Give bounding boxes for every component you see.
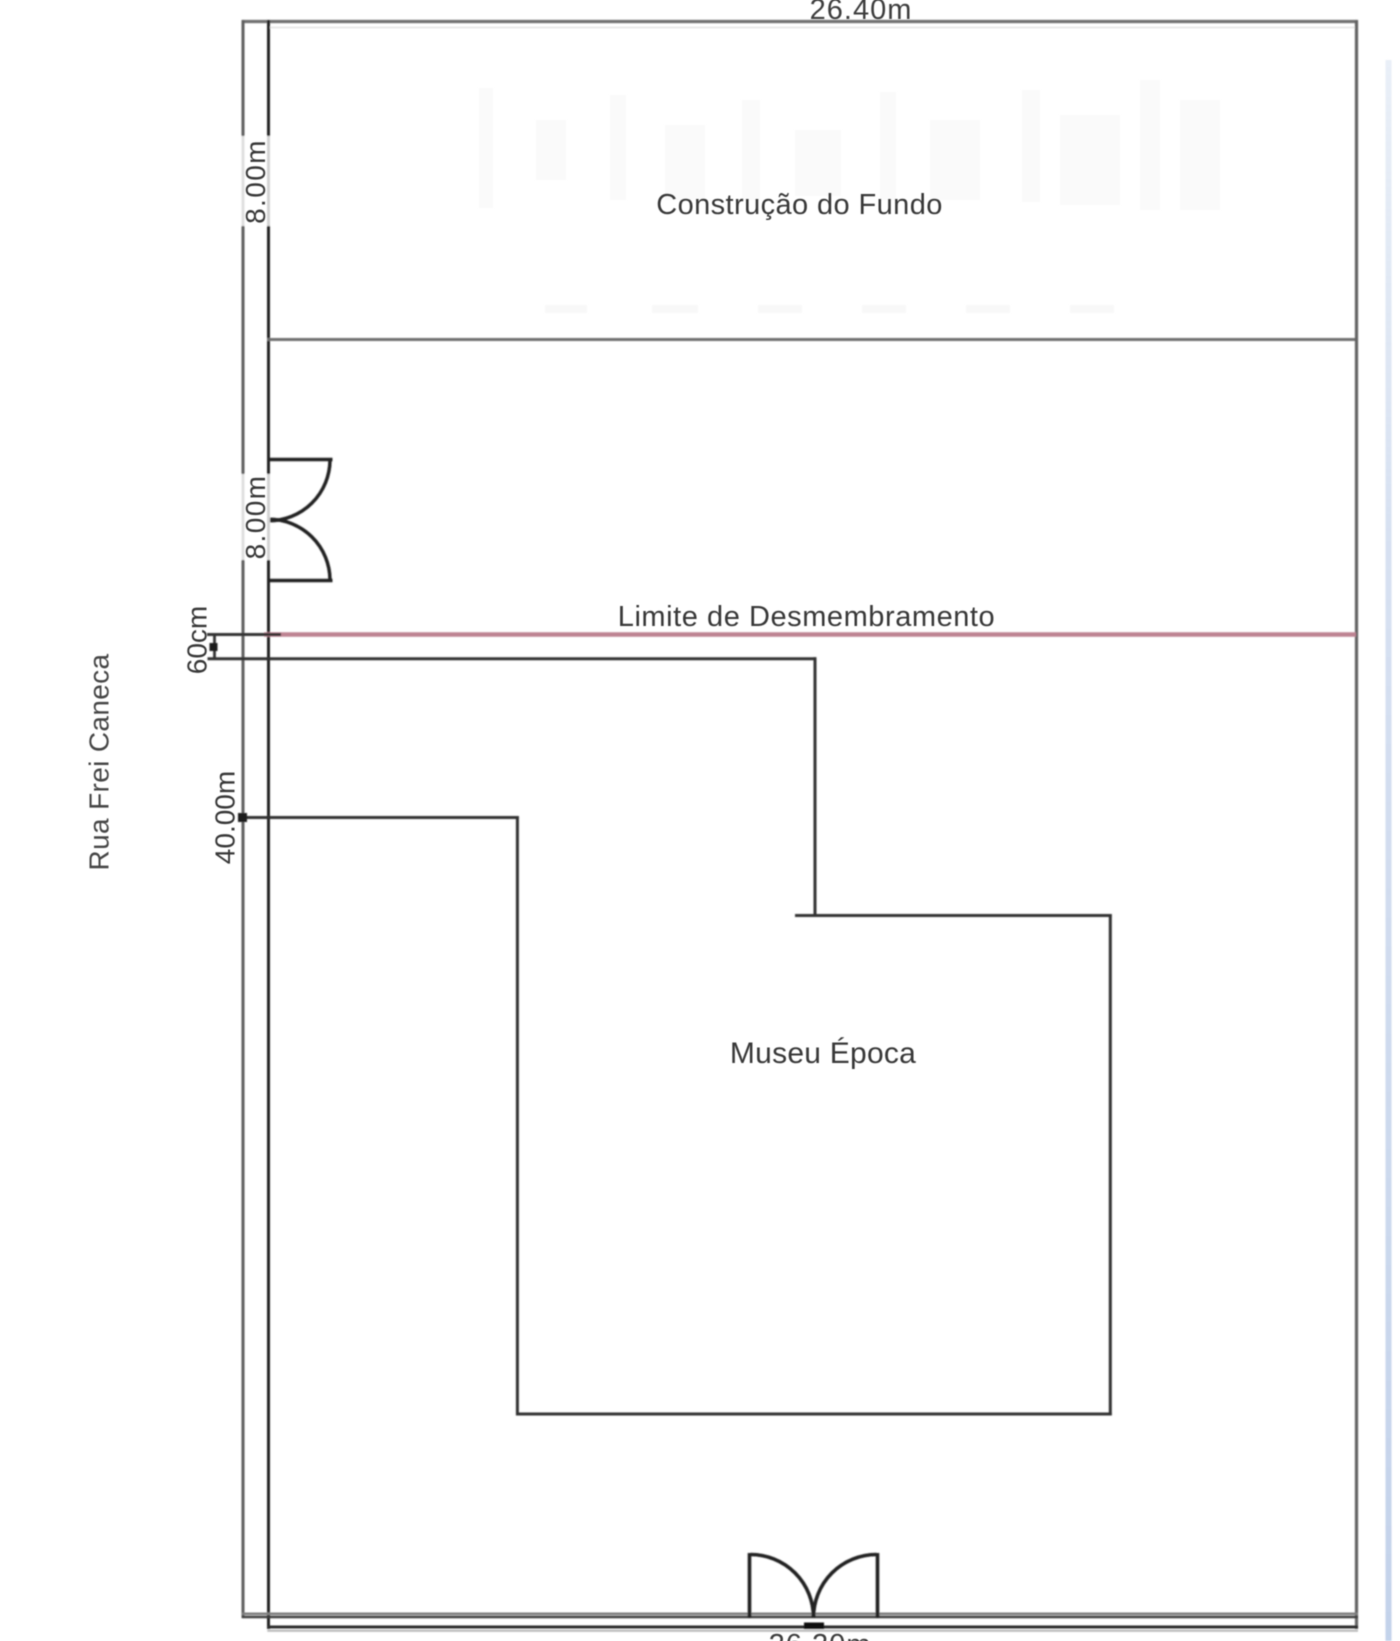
svg-text:40.00m: 40.00m <box>210 771 241 864</box>
svg-text:Rua Frei Caneca: Rua Frei Caneca <box>84 653 115 870</box>
svg-text:Limite de Desmembramento: Limite de Desmembramento <box>618 601 995 633</box>
svg-text:26.20m: 26.20m <box>769 1629 872 1641</box>
svg-text:8.00m: 8.00m <box>240 475 271 560</box>
svg-text:26.40m: 26.40m <box>810 0 913 26</box>
svg-text:Construção do Fundo: Construção do Fundo <box>656 189 943 221</box>
svg-text:Museu Época: Museu Época <box>730 1037 916 1070</box>
svg-text:60cm: 60cm <box>182 606 213 674</box>
svg-text:8.00m: 8.00m <box>240 139 271 224</box>
